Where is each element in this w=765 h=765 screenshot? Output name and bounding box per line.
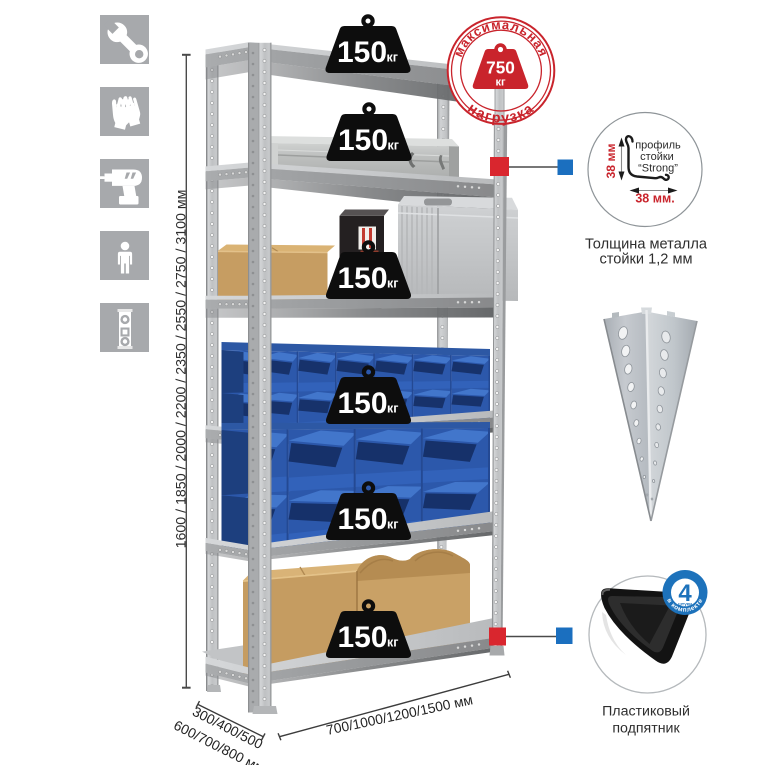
svg-text:1600 / 1850 / 2000 / 2200 / 23: 1600 / 1850 / 2000 / 2200 / 2350 / 2550 … (174, 190, 190, 549)
svg-text:кг: кг (388, 139, 399, 153)
svg-text:38 мм: 38 мм (604, 144, 618, 179)
svg-text:кг: кг (387, 277, 398, 291)
svg-text:кг: кг (495, 77, 506, 89)
svg-text:кг: кг (387, 51, 398, 65)
svg-text:750: 750 (486, 58, 515, 78)
svg-text:кг: кг (387, 636, 398, 650)
svg-text:подпятник: подпятник (612, 721, 680, 737)
svg-text:кг: кг (387, 518, 398, 532)
svg-text:150: 150 (337, 621, 387, 654)
svg-text:штуки: штуки (678, 602, 692, 607)
svg-text:профиль: профиль (635, 140, 681, 152)
svg-text:150: 150 (338, 124, 388, 157)
svg-text:стойки: стойки (640, 151, 674, 163)
svg-text:кг: кг (387, 402, 398, 416)
svg-text:150: 150 (337, 36, 387, 69)
svg-text:Толщина металла: Толщина металла (585, 237, 708, 253)
svg-text:150: 150 (337, 262, 387, 295)
svg-text:Пластиковый: Пластиковый (602, 704, 690, 720)
svg-text:150: 150 (337, 387, 387, 420)
svg-text:стойки 1,2 мм: стойки 1,2 мм (599, 252, 692, 268)
svg-text:150: 150 (337, 503, 387, 536)
svg-text:“Strong”: “Strong” (638, 163, 678, 175)
svg-text:38 мм.: 38 мм. (635, 192, 674, 206)
